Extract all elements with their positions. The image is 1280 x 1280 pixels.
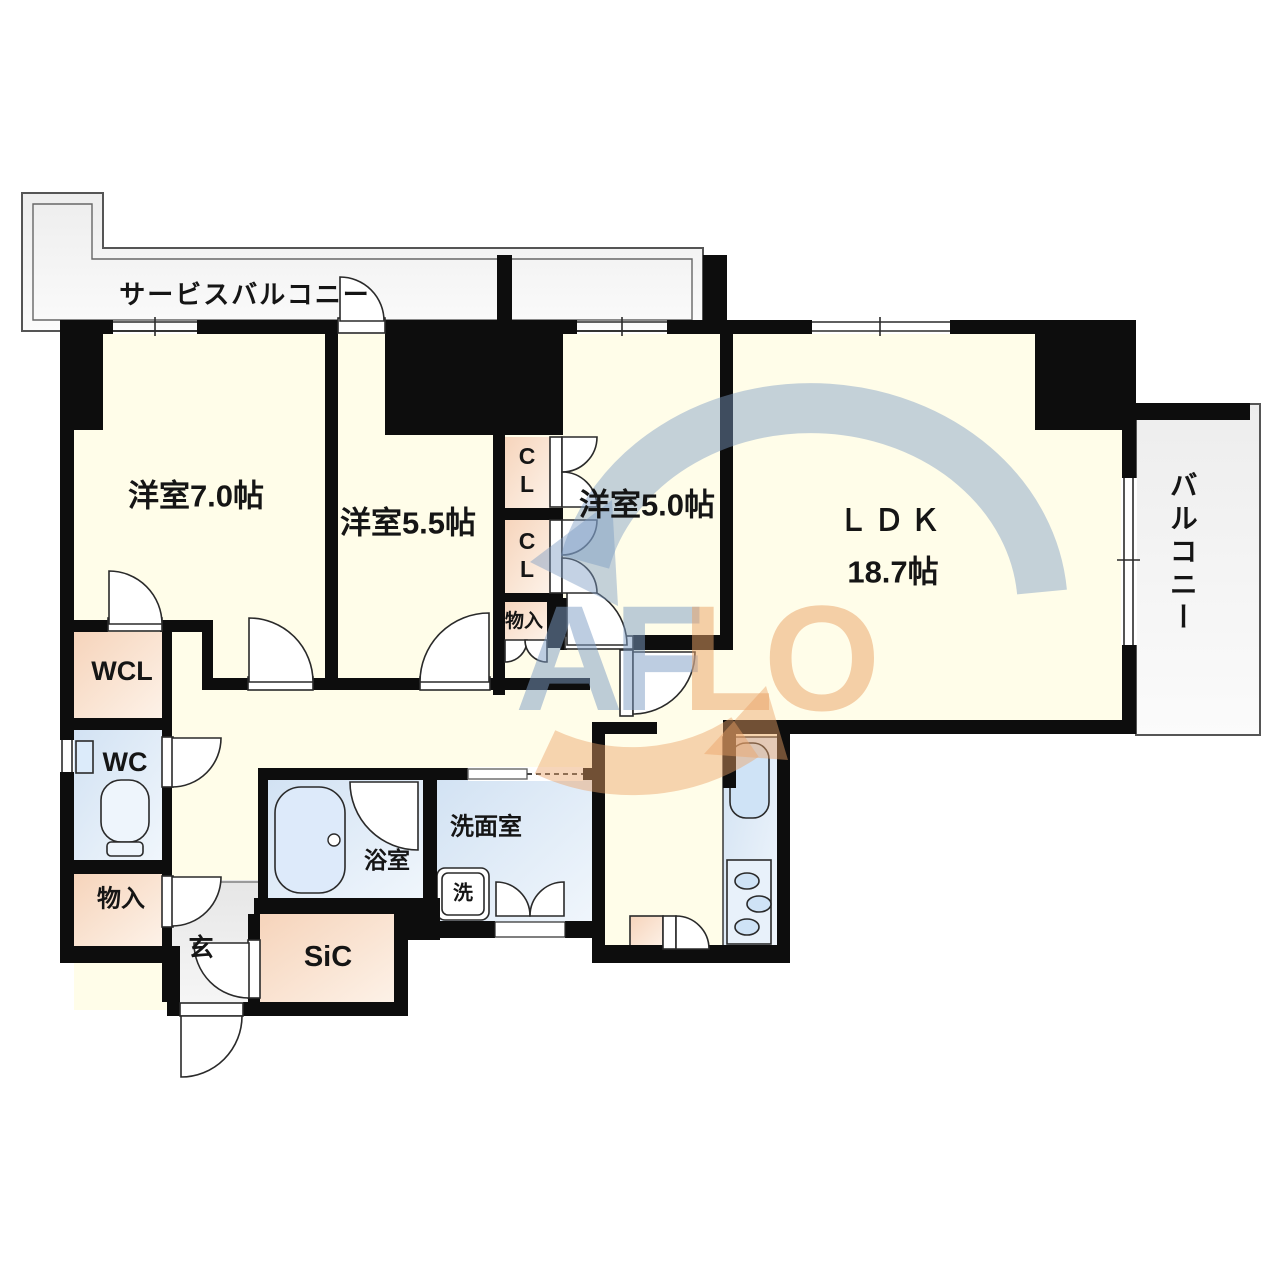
label-bedroom55: 洋室5.5帖 (340, 508, 476, 541)
label-entrance: 玄 (188, 935, 213, 961)
label-service-balcony: サービスバルコニー (119, 281, 370, 308)
label-washer: 洗 (453, 884, 473, 905)
label-closet-upper: CL (515, 443, 539, 499)
label-bathroom: 浴室 (364, 848, 410, 872)
label-wcl: WCL (91, 657, 152, 685)
label-wc: WC (103, 748, 148, 776)
watermark-letters-af: AF (515, 574, 700, 742)
label-ldk-size: 18.7帖 (847, 557, 938, 590)
label-storage-mid: 物入 (505, 612, 543, 632)
label-storage-left: 物入 (97, 886, 145, 911)
floor-plan-drawing: AF LO (0, 0, 1280, 1280)
label-bedroom7: 洋室7.0帖 (128, 481, 264, 514)
label-bedroom5: 洋室5.0帖 (579, 490, 715, 523)
floor-plan: AF LO サービスバルコニー バルコニー 洋室7.0帖 洋室5.5帖 洋室5.… (0, 0, 1280, 1280)
label-ldk: ＬＤＫ (838, 505, 946, 537)
hand-basin-icon (76, 741, 93, 773)
toilet-icon (101, 780, 149, 842)
kitchen-cabinet (630, 916, 663, 949)
label-closet-lower: CL (515, 528, 539, 584)
watermark-letters-lo: LO (682, 574, 875, 742)
label-sic: SiC (304, 942, 352, 972)
label-balcony: バルコニー (1167, 471, 1196, 636)
label-washroom: 洗面室 (450, 814, 522, 839)
